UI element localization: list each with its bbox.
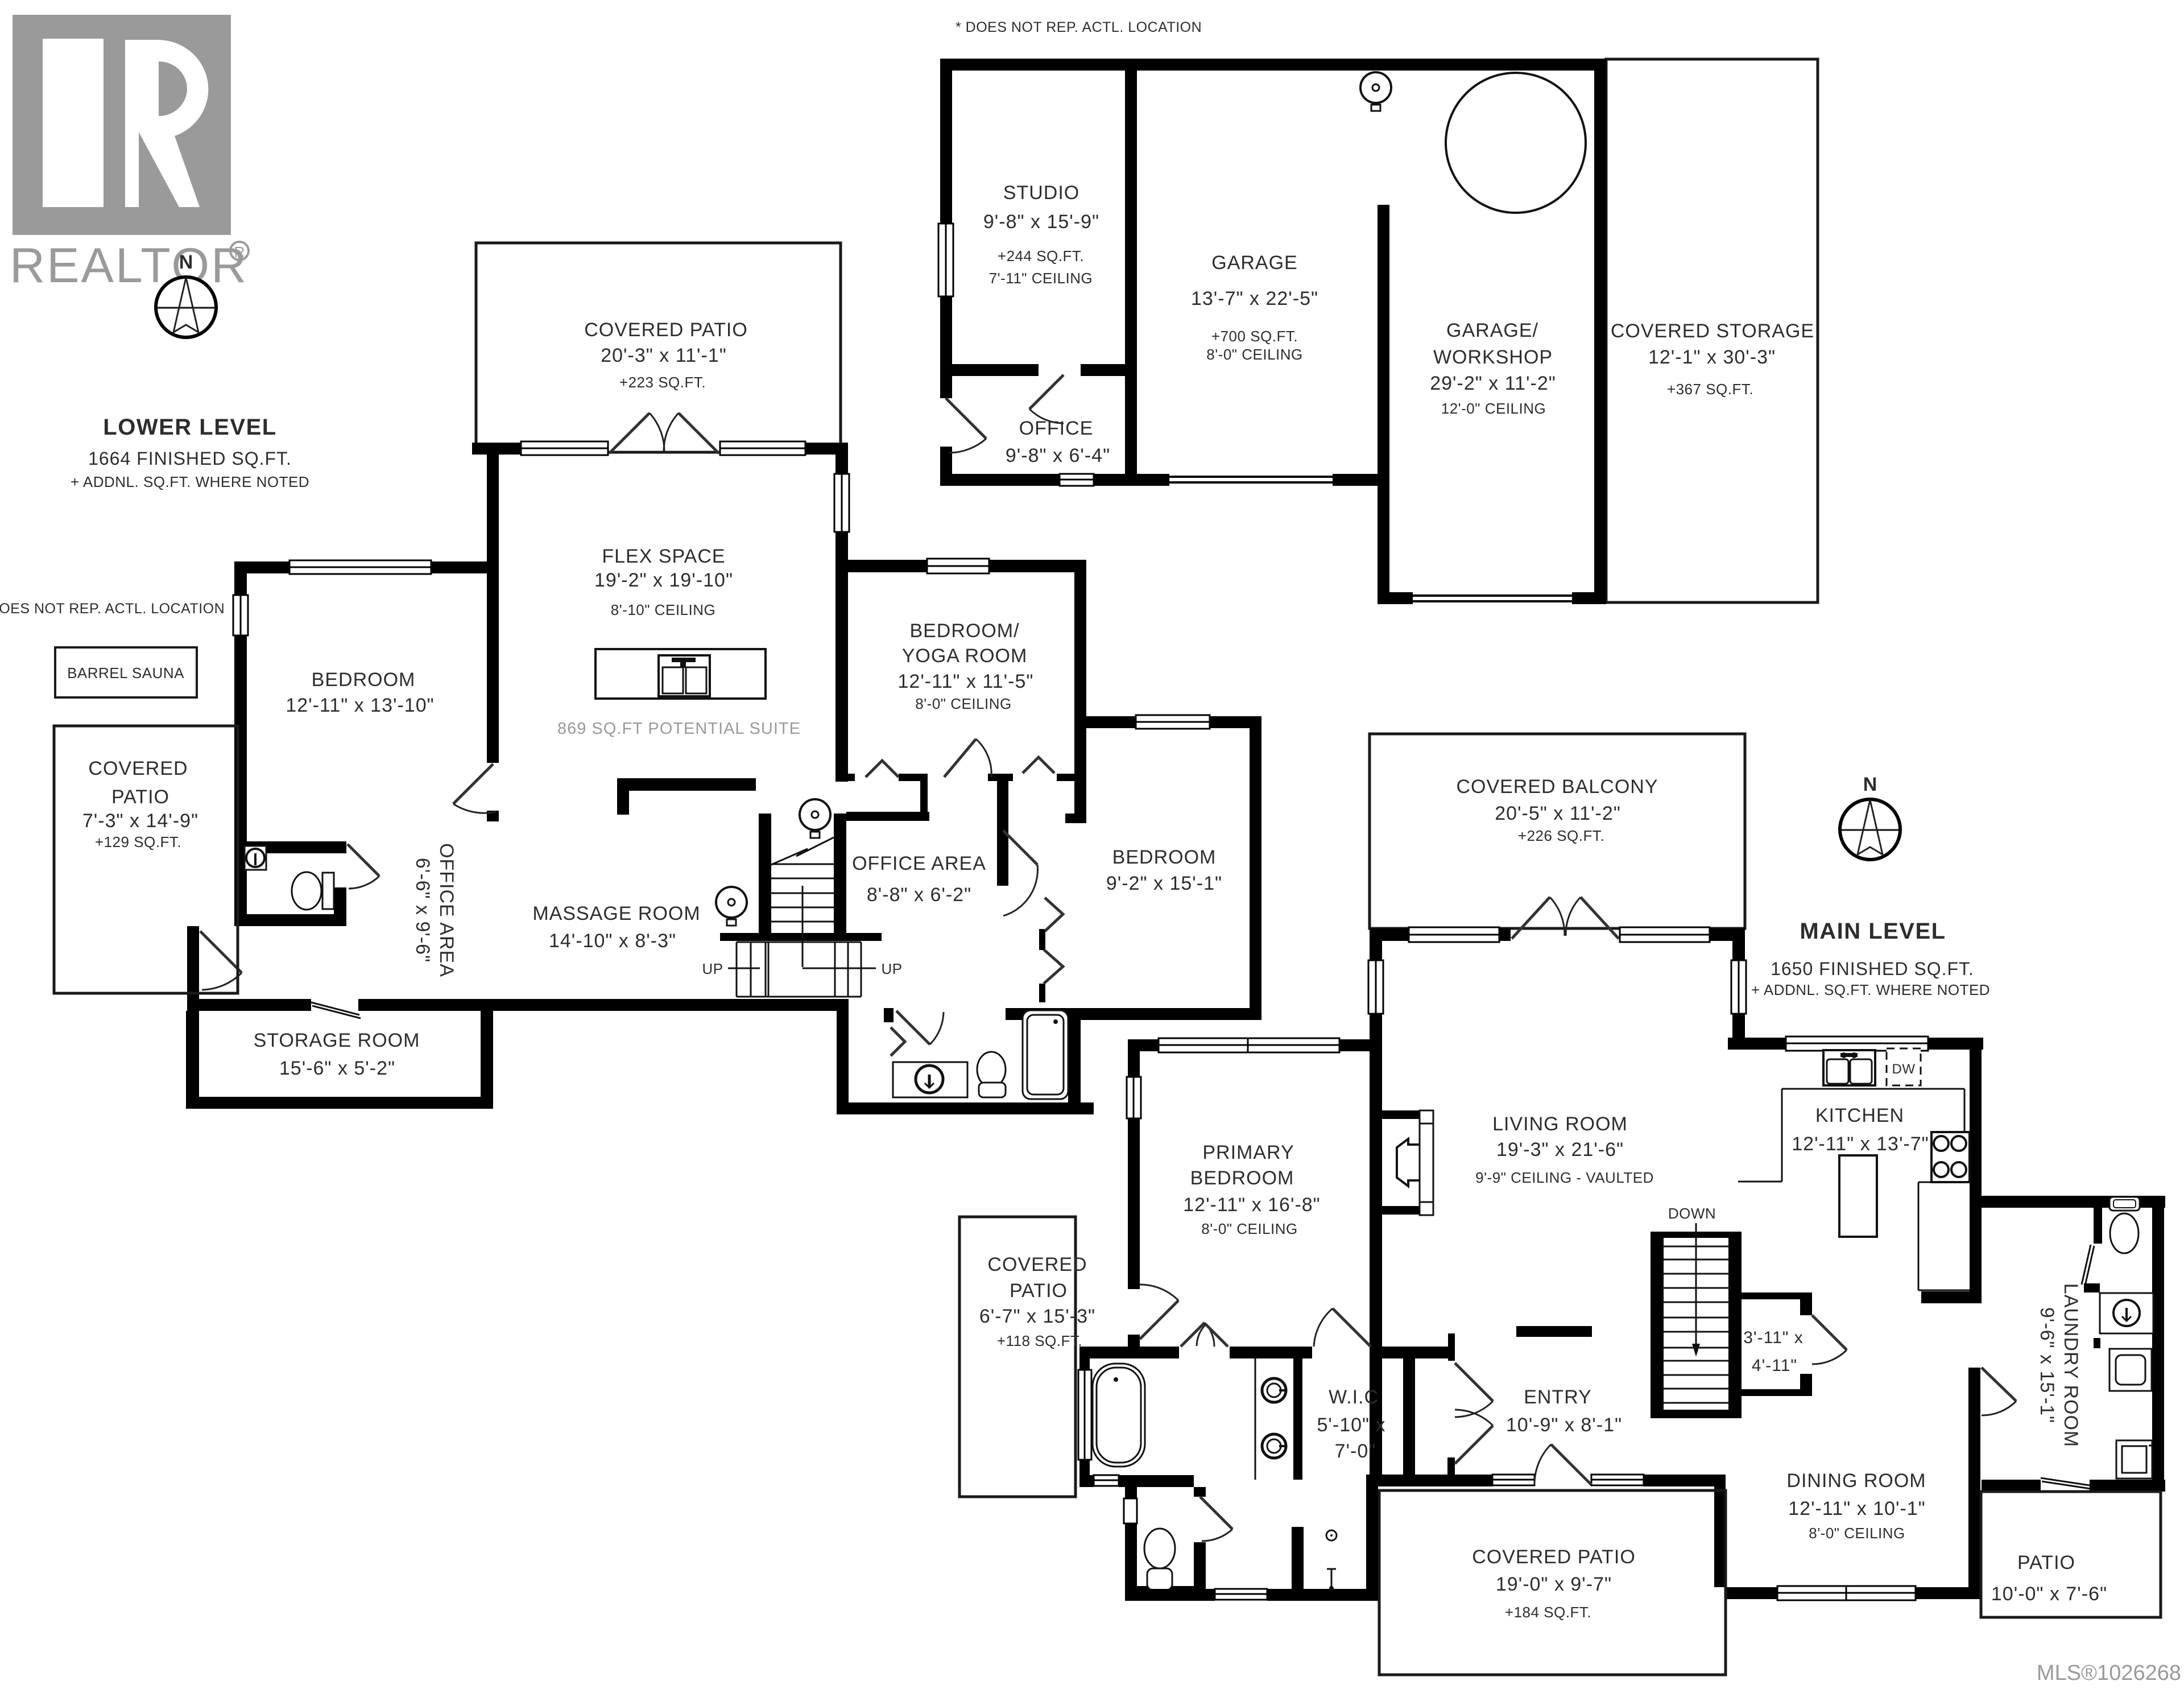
svg-text:MLS®1026268: MLS®1026268	[2037, 1661, 2181, 1685]
svg-text:PATIO: PATIO	[2017, 1552, 2075, 1574]
svg-text:8'-0" CEILING: 8'-0" CEILING	[1206, 346, 1303, 363]
svg-text:ENTRY: ENTRY	[1524, 1386, 1592, 1408]
svg-text:4'-11": 4'-11"	[1752, 1356, 1797, 1375]
svg-text:20'-3" x 11'-1": 20'-3" x 11'-1"	[601, 345, 727, 366]
svg-text:DINING ROOM: DINING ROOM	[1786, 1470, 1926, 1492]
svg-text:LOWER LEVEL: LOWER LEVEL	[103, 415, 276, 440]
svg-text:8'-8" x 6'-2": 8'-8" x 6'-2"	[867, 884, 971, 906]
svg-text:12'-11" x 16'-8": 12'-11" x 16'-8"	[1183, 1194, 1321, 1216]
svg-text:+244 SQ.FT.: +244 SQ.FT.	[998, 247, 1084, 265]
svg-text:19'-0" x 9'-7": 19'-0" x 9'-7"	[1496, 1574, 1612, 1595]
svg-text:LIVING ROOM: LIVING ROOM	[1492, 1113, 1628, 1135]
svg-text:12'-11" x 10'-1": 12'-11" x 10'-1"	[1788, 1498, 1926, 1519]
svg-text:19'-2" x 19'-10": 19'-2" x 19'-10"	[594, 569, 733, 591]
svg-text:9'-9" CEILING - VAULTED: 9'-9" CEILING - VAULTED	[1475, 1169, 1654, 1186]
svg-text:9'-8" x 15'-9": 9'-8" x 15'-9"	[983, 211, 1099, 233]
svg-text:UP: UP	[702, 960, 723, 977]
svg-text:COVERED PATIO: COVERED PATIO	[584, 319, 748, 341]
svg-text:N: N	[1863, 774, 1877, 795]
svg-text:COVERED: COVERED	[987, 1254, 1087, 1275]
svg-text:PATIO: PATIO	[1010, 1280, 1068, 1302]
svg-text:BEDROOM: BEDROOM	[1112, 846, 1217, 868]
svg-text:3'-11" x: 3'-11" x	[1743, 1328, 1804, 1347]
svg-text:PRIMARY: PRIMARY	[1202, 1142, 1294, 1163]
svg-text:+ ADDNL. SQ.FT. WHERE NOTED: + ADDNL. SQ.FT. WHERE NOTED	[1751, 981, 1990, 998]
svg-text:5'-10" x: 5'-10" x	[1317, 1414, 1385, 1436]
svg-text:+226 SQ.FT.: +226 SQ.FT.	[1518, 827, 1604, 844]
svg-text:12'-1" x 30'-3": 12'-1" x 30'-3"	[1648, 346, 1776, 368]
svg-text:7'-0": 7'-0"	[1335, 1440, 1376, 1462]
svg-text:29'-2" x 11'-2": 29'-2" x 11'-2"	[1430, 373, 1556, 394]
svg-text:FLEX SPACE: FLEX SPACE	[602, 546, 725, 567]
svg-text:8'-0" CEILING: 8'-0" CEILING	[915, 695, 1012, 712]
svg-text:6'-7" x 15'-3": 6'-7" x 15'-3"	[979, 1306, 1095, 1327]
svg-text:* DOES NOT REP. ACTL. LOCATION: * DOES NOT REP. ACTL. LOCATION	[0, 601, 225, 617]
svg-text:+700 SQ.FT.: +700 SQ.FT.	[1211, 328, 1298, 345]
svg-text:MASSAGE ROOM: MASSAGE ROOM	[532, 903, 700, 924]
svg-text:1664 FINISHED SQ.FT.: 1664 FINISHED SQ.FT.	[88, 448, 292, 469]
svg-text:9'-2" x 15'-1": 9'-2" x 15'-1"	[1106, 873, 1222, 894]
svg-text:12'-11" x 13'-7": 12'-11" x 13'-7"	[1792, 1133, 1929, 1155]
svg-text:YOGA ROOM: YOGA ROOM	[902, 645, 1028, 667]
svg-text:OFFICE AREA: OFFICE AREA	[436, 843, 457, 977]
svg-text:14'-10" x 8'-3": 14'-10" x 8'-3"	[549, 930, 676, 952]
svg-text:COVERED STORAGE: COVERED STORAGE	[1611, 320, 1814, 342]
svg-text:12'-0" CEILING: 12'-0" CEILING	[1441, 400, 1546, 417]
svg-text:+129 SQ.FT.: +129 SQ.FT.	[95, 833, 181, 850]
svg-text:9'-6" x 15'-1": 9'-6" x 15'-1"	[2036, 1307, 2058, 1423]
svg-text:8'-0" CEILING: 8'-0" CEILING	[1809, 1525, 1905, 1542]
svg-text:BEDROOM: BEDROOM	[1190, 1167, 1294, 1189]
svg-text:6'-6" x 9'-6": 6'-6" x 9'-6"	[412, 858, 433, 963]
svg-text:+223 SQ.FT.: +223 SQ.FT.	[619, 374, 706, 391]
svg-text:COVERED BALCONY: COVERED BALCONY	[1456, 776, 1658, 798]
svg-text:COVERED PATIO: COVERED PATIO	[1472, 1546, 1636, 1568]
svg-text:20'-5" x 11'-2": 20'-5" x 11'-2"	[1495, 803, 1621, 824]
svg-text:8'-10" CEILING: 8'-10" CEILING	[611, 601, 715, 618]
svg-text:+118 SQ.FT.: +118 SQ.FT.	[997, 1332, 1082, 1349]
svg-text:7'-11" CEILING: 7'-11" CEILING	[989, 270, 1093, 287]
svg-text:13'-7" x 22'-5": 13'-7" x 22'-5"	[1191, 288, 1318, 309]
svg-text:PATIO: PATIO	[111, 786, 169, 808]
svg-text:9'-8" x 6'-4": 9'-8" x 6'-4"	[1006, 445, 1110, 466]
svg-text:+184 SQ.FT.: +184 SQ.FT.	[1505, 1604, 1591, 1621]
svg-text:BEDROOM/: BEDROOM/	[909, 620, 1019, 642]
svg-text:19'-3" x 21'-6": 19'-3" x 21'-6"	[1496, 1139, 1624, 1161]
svg-text:DOWN: DOWN	[1668, 1205, 1716, 1222]
svg-text:BEDROOM: BEDROOM	[312, 669, 416, 691]
svg-text:15'-6" x 5'-2": 15'-6" x 5'-2"	[279, 1058, 395, 1079]
svg-text:UP: UP	[881, 960, 902, 977]
svg-text:MAIN LEVEL: MAIN LEVEL	[1800, 919, 1946, 944]
svg-text:LAUNDRY ROOM: LAUNDRY ROOM	[2060, 1283, 2082, 1447]
svg-text:12'-11" x 13'-10": 12'-11" x 13'-10"	[286, 695, 434, 716]
svg-text:GARAGE/: GARAGE/	[1446, 320, 1538, 341]
svg-text:N: N	[179, 251, 193, 273]
svg-text:R: R	[234, 243, 245, 261]
svg-text:869 SQ.FT POTENTIAL SUITE: 869 SQ.FT POTENTIAL SUITE	[557, 720, 801, 738]
svg-text:10'-0" x 7'-6": 10'-0" x 7'-6"	[1991, 1583, 2107, 1605]
svg-text:* DOES NOT REP. ACTL. LOCATION: * DOES NOT REP. ACTL. LOCATION	[955, 19, 1202, 35]
svg-text:DW: DW	[1892, 1062, 1916, 1077]
svg-text:KITCHEN: KITCHEN	[1815, 1105, 1904, 1126]
svg-text:8'-0" CEILING: 8'-0" CEILING	[1201, 1220, 1298, 1237]
svg-text:W.I.C: W.I.C	[1329, 1386, 1379, 1408]
svg-text:OFFICE AREA: OFFICE AREA	[852, 853, 986, 874]
svg-text:1650 FINISHED SQ.FT.: 1650 FINISHED SQ.FT.	[1771, 959, 1974, 979]
svg-text:REALTOR: REALTOR	[10, 238, 248, 293]
svg-text:7'-3" x 14'-9": 7'-3" x 14'-9"	[82, 810, 198, 832]
svg-text:STORAGE ROOM: STORAGE ROOM	[254, 1030, 420, 1051]
svg-text:COVERED: COVERED	[88, 758, 188, 779]
svg-text:+367 SQ.FT.: +367 SQ.FT.	[1667, 381, 1753, 398]
svg-text:BARREL SAUNA: BARREL SAUNA	[67, 664, 184, 682]
svg-text:+ ADDNL. SQ.FT. WHERE NOTED: + ADDNL. SQ.FT. WHERE NOTED	[71, 473, 309, 490]
svg-text:WORKSHOP: WORKSHOP	[1433, 346, 1553, 368]
svg-text:STUDIO: STUDIO	[1003, 182, 1079, 204]
svg-text:GARAGE: GARAGE	[1211, 252, 1297, 274]
svg-text:OFFICE: OFFICE	[1019, 418, 1094, 439]
svg-text:10'-9" x 8'-1": 10'-9" x 8'-1"	[1506, 1414, 1622, 1436]
svg-text:12'-11" x 11'-5": 12'-11" x 11'-5"	[898, 671, 1034, 692]
